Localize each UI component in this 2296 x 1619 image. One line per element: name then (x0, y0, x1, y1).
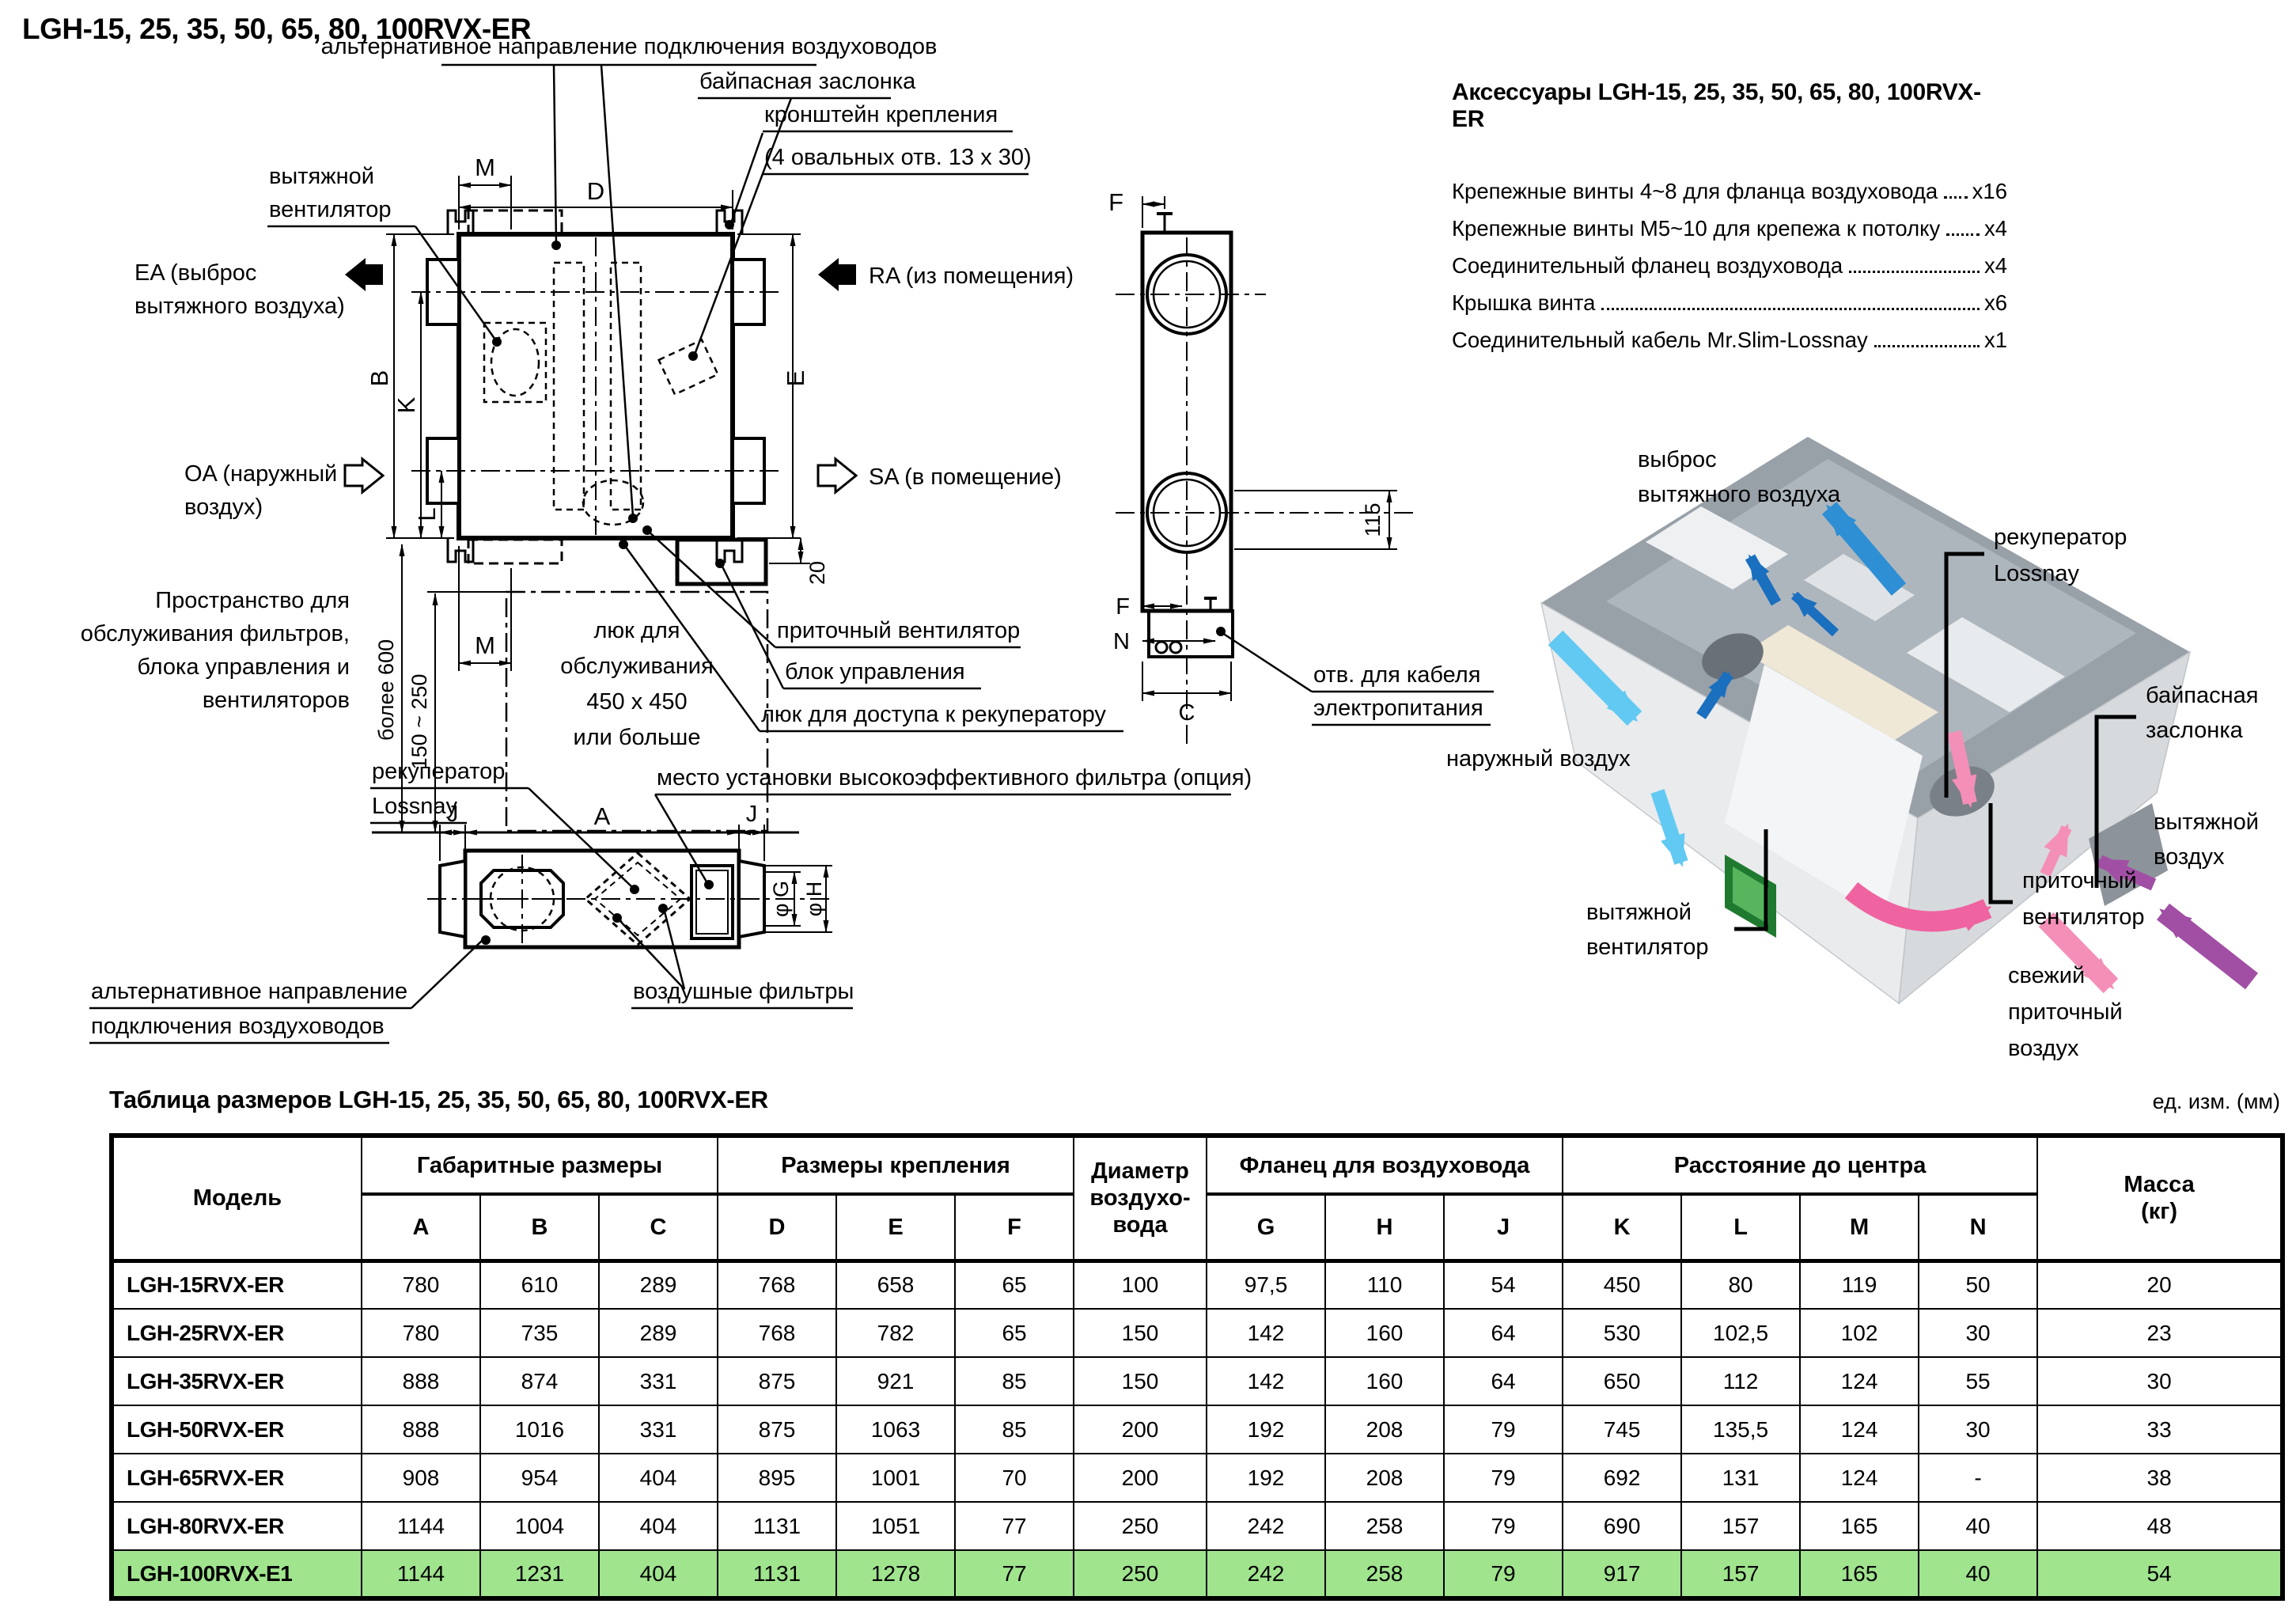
value-cell: 33 (2037, 1405, 2283, 1454)
side-view-drawing: F 115 F N C отв. для кабеля электропитан… (1108, 188, 1494, 744)
value-cell: 77 (955, 1550, 1074, 1598)
air-filters-label: воздушные фильтры (633, 979, 854, 1004)
dim-phi-g: φ G (769, 881, 793, 917)
table-row: LGH-15RVX-ER7806102897686586510097,51105… (112, 1261, 2283, 1309)
value-cell: 1278 (836, 1550, 955, 1598)
value-cell: 79 (1444, 1502, 1563, 1550)
col-header-a: A (362, 1194, 480, 1261)
accessory-label: Соединительный фланец воздуховода (1452, 247, 1843, 284)
value-cell: 250 (1074, 1550, 1207, 1598)
value-cell: 65 (955, 1309, 1074, 1357)
value-cell: 160 (1325, 1309, 1444, 1357)
value-cell: 208 (1325, 1405, 1444, 1454)
value-cell: 250 (1074, 1502, 1207, 1550)
value-cell: 54 (2037, 1550, 2283, 1598)
value-cell: 780 (362, 1261, 480, 1309)
value-cell: 79 (1444, 1550, 1563, 1598)
group-header-center-distance: Расстояние до центра (1563, 1136, 2037, 1194)
value-cell: 768 (718, 1261, 836, 1309)
bracket-label: кронштейн крепления (764, 102, 998, 127)
accessory-qty: x1 (1984, 321, 2007, 358)
value-cell: - (1919, 1454, 2037, 1502)
value-cell: 404 (599, 1550, 718, 1598)
col-header-c: C (599, 1194, 718, 1261)
dim-k: K (392, 396, 420, 413)
value-cell: 875 (718, 1405, 836, 1454)
accessory-leader-dots (1946, 233, 1980, 236)
value-cell: 79 (1444, 1405, 1563, 1454)
col-header-j: J (1444, 1194, 1563, 1261)
accessory-qty: x16 (1972, 173, 2007, 210)
col-header-e: E (836, 1194, 955, 1261)
model-cell: LGH-15RVX-ER (112, 1261, 362, 1309)
group-header-flange: Фланец для воздуховода (1207, 1136, 1563, 1194)
value-cell: 124 (1800, 1454, 1919, 1502)
alt-duct-label-front: подключения воздуховодов (91, 1014, 385, 1039)
fresh-air-label: воздух (2008, 1036, 2079, 1061)
sa-arrow-icon (818, 459, 856, 492)
value-cell: 888 (362, 1405, 480, 1454)
value-cell: 50 (1919, 1261, 2037, 1309)
accessory-leader-dots (1601, 308, 1980, 310)
dim-j-right: J (746, 802, 758, 827)
size-table-body: LGH-15RVX-ER7806102897686586510097,51105… (112, 1261, 2283, 1598)
alt-duct-position (468, 540, 562, 563)
value-cell: 77 (955, 1502, 1074, 1550)
service-space-label: блока управления и (137, 654, 350, 680)
value-cell: 157 (1681, 1502, 1800, 1550)
value-cell: 100 (1074, 1261, 1207, 1309)
value-cell: 30 (1919, 1405, 2037, 1454)
control-box-label: блок управления (785, 659, 965, 684)
dim-n: N (1113, 629, 1130, 654)
value-cell: 1051 (836, 1502, 955, 1550)
dim-phi-h: φ H (802, 882, 826, 917)
table-row: LGH-80RVX-ER1144100440411311051772502422… (112, 1502, 2283, 1550)
ra-label: RA (из помещения) (869, 264, 1074, 289)
service-space-label: обслуживания фильтров, (81, 621, 350, 646)
hatch-label: или больше (574, 725, 701, 750)
value-cell: 97,5 (1207, 1261, 1325, 1309)
bypass-damper-label: байпасная заслонка (699, 69, 916, 94)
model-cell: LGH-80RVX-ER (112, 1502, 362, 1550)
dimensions-table-section: Таблица размеров LGH-15, 25, 35, 50, 65,… (109, 1086, 2280, 1601)
exhaust-fan-outline (484, 323, 546, 402)
illus-exhaust-fan-label: вентилятор (1586, 935, 1709, 960)
value-cell: 450 (1563, 1261, 1681, 1309)
model-cell: LGH-65RVX-ER (112, 1454, 362, 1502)
value-cell: 1144 (362, 1550, 480, 1598)
exhaust-fan-label: вытяжной (269, 164, 374, 189)
dimensions-table: Модель Габаритные размеры Размеры крепле… (109, 1133, 2285, 1601)
col-header-model: Модель (112, 1136, 362, 1261)
accessories-title: Аксессуары LGH-15, 25, 35, 50, 65, 80, 1… (1452, 79, 2007, 133)
value-cell: 200 (1074, 1454, 1207, 1502)
col-header-k: K (1563, 1194, 1681, 1261)
col-header-m: M (1800, 1194, 1919, 1261)
model-cell: LGH-35RVX-ER (112, 1357, 362, 1405)
value-cell: 1063 (836, 1405, 955, 1454)
table-row: LGH-65RVX-ER9089544048951001702001922087… (112, 1454, 2283, 1502)
value-cell: 258 (1325, 1550, 1444, 1598)
model-cell: LGH-50RVX-ER (112, 1405, 362, 1454)
value-cell: 895 (718, 1454, 836, 1502)
hatch-label: люк для (594, 618, 680, 643)
value-cell: 690 (1563, 1502, 1681, 1550)
value-cell: 23 (2037, 1309, 2283, 1357)
dim-range: 150 ~ 250 (407, 674, 431, 770)
unit-illustration: выброс вытяжного воздуха рекуператор Los… (1446, 437, 2259, 1061)
col-header-h: H (1325, 1194, 1444, 1261)
value-cell: 610 (480, 1261, 599, 1309)
value-cell: 200 (1074, 1405, 1207, 1454)
oa-label: OA (наружный (184, 461, 337, 487)
bracket-label: (4 овальных отв. 13 x 30) (764, 145, 1032, 170)
hatch-label: обслуживания (560, 654, 713, 679)
dim-b: B (366, 370, 393, 387)
value-cell: 1231 (480, 1550, 599, 1598)
dim-l: L (413, 507, 441, 521)
bypass-damper-outline (659, 340, 718, 395)
fresh-air-label: приточный (2008, 999, 2123, 1025)
value-cell: 782 (836, 1309, 955, 1357)
value-cell: 192 (1207, 1454, 1325, 1502)
hatch-label: 450 x 450 (586, 689, 687, 715)
value-cell: 954 (480, 1454, 599, 1502)
dim-e: E (782, 370, 809, 387)
value-cell: 165 (1800, 1550, 1919, 1598)
value-cell: 1004 (480, 1502, 599, 1550)
ea-label: EA (выброс (135, 260, 256, 286)
col-header-mass: Масса (кг) (2037, 1136, 2283, 1261)
return-air-label: вытяжной (2154, 809, 2259, 835)
dim-20: 20 (805, 561, 829, 585)
supply-fan-label: приточный вентилятор (777, 618, 1020, 643)
table-row: LGH-50RVX-ER8881016331875106385200192208… (112, 1405, 2283, 1454)
value-cell: 102,5 (1681, 1309, 1800, 1357)
value-cell: 131 (1681, 1454, 1800, 1502)
value-cell: 79 (1444, 1454, 1563, 1502)
cable-hole-label: отв. для кабеля (1313, 662, 1480, 688)
oa-label: воздух) (184, 495, 263, 520)
value-cell: 124 (1800, 1357, 1919, 1405)
accessory-label: Крепежные винты М5~10 для крепежа к пото… (1452, 210, 1940, 247)
fresh-air-label: свежий (2008, 963, 2085, 988)
value-cell: 142 (1207, 1309, 1325, 1357)
accessory-item: Соединительный фланец воздуховодаx4 (1452, 247, 2007, 284)
accessory-qty: x6 (1984, 284, 2007, 321)
accessory-leader-dots (1874, 345, 1980, 347)
ra-arrow-icon (818, 258, 856, 291)
dim-min-space: более 600 (374, 639, 398, 741)
col-header-l: L (1681, 1194, 1800, 1261)
value-cell: 110 (1325, 1261, 1444, 1309)
value-cell: 157 (1681, 1550, 1800, 1598)
service-space-label: Пространство для (155, 588, 350, 613)
dim-d: D (587, 177, 604, 205)
value-cell: 745 (1563, 1405, 1681, 1454)
ea-label: вытяжного воздуха) (135, 294, 345, 319)
value-cell: 404 (599, 1502, 718, 1550)
ea-arrow-icon (345, 258, 383, 291)
sa-label: SA (в помещение) (869, 464, 1062, 490)
value-cell: 80 (1681, 1261, 1800, 1309)
heat-exchanger-core (554, 263, 584, 510)
accessory-item: Крепежные винты М5~10 для крепежа к пото… (1452, 210, 2007, 247)
accessory-item: Крепежные винты 4~8 для фланца воздухово… (1452, 173, 2007, 210)
col-header-f: F (955, 1194, 1074, 1261)
value-cell: 102 (1800, 1309, 1919, 1357)
illus-bypass-label: байпасная (2146, 683, 2258, 708)
value-cell: 908 (362, 1454, 480, 1502)
hx-label: рекуператор (372, 759, 505, 784)
col-header-d: D (718, 1194, 836, 1261)
accessory-label: Крышка винта (1452, 284, 1595, 321)
value-cell: 150 (1074, 1357, 1207, 1405)
dim-f-top: F (1108, 188, 1123, 216)
value-cell: 64 (1444, 1357, 1563, 1405)
dim-f-bottom: F (1116, 594, 1130, 620)
dim-c: C (1179, 700, 1195, 726)
value-cell: 289 (599, 1309, 718, 1357)
value-cell: 124 (1800, 1405, 1919, 1454)
illus-bypass-label: заслонка (2146, 718, 2244, 743)
value-cell: 85 (955, 1405, 1074, 1454)
value-cell: 917 (1563, 1550, 1681, 1598)
heat-exchanger-core (611, 263, 641, 510)
col-header-g: G (1207, 1194, 1325, 1261)
value-cell: 65 (955, 1261, 1074, 1309)
value-cell: 875 (718, 1357, 836, 1405)
value-cell: 289 (599, 1261, 718, 1309)
value-cell: 54 (1444, 1261, 1563, 1309)
value-cell: 64 (1444, 1309, 1563, 1357)
group-header-overall: Габаритные размеры (362, 1136, 718, 1194)
return-air-arrow-icon (2163, 912, 2252, 981)
col-header-n: N (1919, 1194, 2037, 1261)
top-view-drawing: M D B K L E 20 M более 600 150 ~ 250 люк… (81, 34, 1123, 832)
accessory-leader-dots (1849, 271, 1980, 273)
table-row: LGH-25RVX-ER7807352897687826515014216064… (112, 1309, 2283, 1357)
accessory-label: Соединительный кабель Mr.Slim-Lossnay (1452, 321, 1868, 358)
value-cell: 165 (1800, 1502, 1919, 1550)
value-cell: 780 (362, 1309, 480, 1357)
value-cell: 331 (599, 1405, 718, 1454)
alt-duct-position (468, 210, 562, 234)
value-cell: 20 (2037, 1261, 2283, 1309)
value-cell: 48 (2037, 1502, 2283, 1550)
return-air-label: воздух (2154, 844, 2225, 870)
value-cell: 150 (1074, 1309, 1207, 1357)
value-cell: 192 (1207, 1405, 1325, 1454)
col-header-duct-diameter: Диаметр воздухо- вода (1074, 1136, 1207, 1261)
value-cell: 30 (1919, 1309, 2037, 1357)
value-cell: 142 (1207, 1357, 1325, 1405)
value-cell: 888 (362, 1357, 480, 1405)
value-cell: 135,5 (1681, 1405, 1800, 1454)
table-header: Модель Габаритные размеры Размеры крепле… (112, 1136, 2283, 1261)
table-row: LGH-35RVX-ER8888743318759218515014216064… (112, 1357, 2283, 1405)
outdoor-air-label: наружный воздух (1446, 746, 1631, 772)
alt-duct-label-front: альтернативное направление (91, 979, 407, 1004)
table-group-header-row: Модель Габаритные размеры Размеры крепле… (112, 1136, 2283, 1194)
dim-115: 115 (1361, 502, 1385, 537)
value-cell: 242 (1207, 1502, 1325, 1550)
accessory-item: Соединительный кабель Mr.Slim-Lossnayx1 (1452, 321, 2007, 358)
value-cell: 921 (836, 1357, 955, 1405)
bottom-view-drawing: J A J φ G φ H рекуператор Lossnay место … (89, 759, 1252, 1043)
value-cell: 735 (480, 1309, 599, 1357)
table-unit-note: ед. изм. (мм) (2153, 1090, 2280, 1114)
accessories-list: Крепежные винты 4~8 для фланца воздухово… (1452, 173, 2007, 358)
filter-box (691, 866, 733, 938)
value-cell: 55 (1919, 1357, 2037, 1405)
group-header-mounting: Размеры крепления (718, 1136, 1074, 1194)
model-cell: LGH-100RVX-E1 (112, 1550, 362, 1598)
value-cell: 38 (2037, 1454, 2283, 1502)
illus-supply-fan-label: приточный (2022, 868, 2137, 893)
accessory-leader-dots (1944, 196, 1967, 199)
value-cell: 331 (599, 1357, 718, 1405)
value-cell: 1016 (480, 1405, 599, 1454)
accessory-qty: x4 (1984, 247, 2007, 284)
exhaust-fan-label: вентилятор (269, 197, 392, 222)
value-cell: 258 (1325, 1502, 1444, 1550)
value-cell: 85 (955, 1357, 1074, 1405)
value-cell: 208 (1325, 1454, 1444, 1502)
value-cell: 242 (1207, 1550, 1325, 1598)
illus-hx-label: Lossnay (1994, 561, 2080, 586)
dim-m-bottom: M (475, 631, 495, 659)
value-cell: 874 (480, 1357, 599, 1405)
dim-m-top: M (475, 154, 495, 181)
hx-label: Lossnay (372, 794, 458, 819)
value-cell: 40 (1919, 1550, 2037, 1598)
value-cell: 658 (836, 1261, 955, 1309)
value-cell: 1001 (836, 1454, 955, 1502)
exhaust-out-label: вытяжного воздуха (1638, 482, 1841, 507)
oa-arrow-icon (345, 459, 383, 492)
value-cell: 119 (1800, 1261, 1919, 1309)
cable-hole-label: электропитания (1313, 696, 1483, 721)
value-cell: 404 (599, 1454, 718, 1502)
accessory-item: Крышка винтаx6 (1452, 284, 2007, 321)
illus-exhaust-fan-label: вытяжной (1586, 900, 1692, 925)
value-cell: 70 (955, 1454, 1074, 1502)
exhaust-out-label: выброс (1638, 447, 1717, 472)
value-cell: 1131 (718, 1550, 836, 1598)
dim-a: A (594, 802, 611, 830)
value-cell: 650 (1563, 1357, 1681, 1405)
hx-hatch-label: люк для доступа к рекуператору (761, 702, 1106, 727)
table-title: Таблица размеров LGH-15, 25, 35, 50, 65,… (109, 1086, 768, 1114)
alt-duct-label: альтернативное направление подключения в… (321, 34, 938, 59)
value-cell: 160 (1325, 1357, 1444, 1405)
value-cell: 30 (2037, 1357, 2283, 1405)
col-header-b: B (480, 1194, 599, 1261)
value-cell: 40 (1919, 1502, 2037, 1550)
value-cell: 1131 (718, 1502, 836, 1550)
value-cell: 112 (1681, 1357, 1800, 1405)
illus-hx-label: рекуператор (1994, 525, 2127, 550)
table-row: LGH-100RVX-E1114412314041131127877250242… (112, 1550, 2283, 1598)
accessories-panel: Аксессуары LGH-15, 25, 35, 50, 65, 80, 1… (1452, 79, 2007, 358)
value-cell: 692 (1563, 1454, 1681, 1502)
value-cell: 768 (718, 1309, 836, 1357)
accessory-label: Крепежные винты 4~8 для фланца воздухово… (1452, 173, 1938, 210)
illus-supply-fan-label: вентилятор (2022, 904, 2145, 930)
accessory-qty: x4 (1984, 210, 2007, 247)
service-space-label: вентиляторов (203, 688, 350, 713)
filter-option-label: место установки высокоэффективного фильт… (657, 765, 1252, 791)
value-cell: 530 (1563, 1309, 1681, 1357)
value-cell: 1144 (362, 1502, 480, 1550)
model-cell: LGH-25RVX-ER (112, 1309, 362, 1357)
